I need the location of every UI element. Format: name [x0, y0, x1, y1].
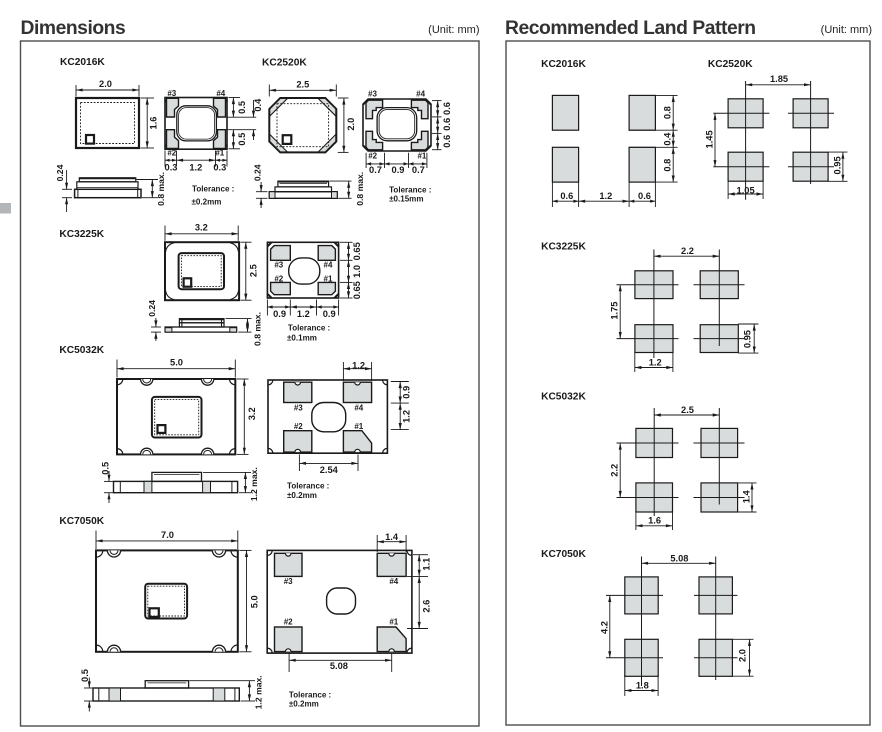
svg-text:KC5032K: KC5032K [541, 391, 586, 402]
svg-text:#2: #2 [284, 618, 293, 627]
svg-text:1.45: 1.45 [705, 130, 715, 148]
svg-text:1.8: 1.8 [636, 680, 649, 690]
svg-text:#2: #2 [167, 149, 176, 158]
svg-text:0.95: 0.95 [743, 330, 753, 348]
svg-text:0.95: 0.95 [832, 156, 842, 174]
svg-text:#1: #1 [389, 618, 398, 627]
svg-text:1.2: 1.2 [401, 410, 411, 423]
svg-text:0.9: 0.9 [323, 309, 336, 319]
svg-text:2.5: 2.5 [248, 264, 258, 277]
svg-text:0.8 max.: 0.8 max. [253, 312, 263, 346]
svg-text:0.3: 0.3 [213, 162, 226, 172]
svg-text:#3: #3 [167, 89, 176, 98]
svg-text:5.08: 5.08 [670, 553, 688, 563]
svg-text:#4: #4 [416, 89, 425, 98]
svg-text:Tolerance :: Tolerance : [289, 691, 331, 700]
svg-text:#2: #2 [294, 422, 303, 431]
svg-text:1.05: 1.05 [737, 185, 755, 195]
svg-text:0.24: 0.24 [147, 300, 157, 317]
svg-text:5.08: 5.08 [330, 661, 348, 671]
svg-text:0.4: 0.4 [662, 132, 672, 146]
svg-text:2.5: 2.5 [681, 405, 694, 415]
svg-text:#4: #4 [389, 577, 398, 586]
svg-text:#3: #3 [294, 403, 303, 412]
svg-text:#1: #1 [215, 149, 224, 158]
svg-text:0.6: 0.6 [442, 135, 452, 148]
svg-text:±0.2mm: ±0.2mm [287, 491, 317, 500]
svg-text:2.0: 2.0 [99, 79, 112, 89]
svg-text:1.85: 1.85 [770, 74, 788, 84]
svg-text:3.2: 3.2 [195, 223, 208, 233]
svg-text:1.2: 1.2 [649, 357, 662, 367]
svg-text:1.75: 1.75 [610, 302, 620, 320]
svg-text:KC3225K: KC3225K [541, 241, 586, 252]
svg-text:0.4: 0.4 [253, 98, 263, 112]
svg-text:0.6: 0.6 [638, 191, 651, 201]
svg-text:0.24: 0.24 [252, 164, 262, 181]
svg-text:2.54: 2.54 [320, 465, 339, 475]
svg-text:#3: #3 [368, 89, 377, 98]
svg-text:3.2: 3.2 [247, 407, 257, 420]
svg-text:#4: #4 [354, 403, 363, 412]
svg-text:0.6: 0.6 [442, 102, 452, 115]
svg-text:Tolerance :: Tolerance : [288, 324, 330, 333]
svg-text:KC7050K: KC7050K [59, 516, 104, 527]
svg-text:1.6: 1.6 [648, 516, 661, 526]
svg-text:#1: #1 [417, 151, 426, 160]
svg-text:#4: #4 [216, 89, 225, 98]
svg-text:KC2016K: KC2016K [60, 57, 105, 68]
svg-text:0.5: 0.5 [100, 462, 110, 475]
svg-text:0.24: 0.24 [55, 164, 65, 181]
svg-text:#3: #3 [284, 577, 293, 586]
svg-text:0.7: 0.7 [412, 165, 425, 175]
svg-text:Tolerance :: Tolerance : [287, 482, 329, 491]
svg-text:0.3: 0.3 [165, 162, 178, 172]
svg-text:0.6: 0.6 [560, 191, 573, 201]
svg-text:Tolerance :: Tolerance : [192, 185, 234, 194]
svg-text:#2: #2 [368, 151, 377, 160]
svg-text:2.2: 2.2 [681, 246, 694, 256]
svg-text:(Unit: mm): (Unit: mm) [821, 24, 872, 36]
svg-text:2.6: 2.6 [421, 600, 431, 613]
svg-text:KC2016K: KC2016K [541, 59, 586, 70]
svg-text:0.8 max.: 0.8 max. [355, 172, 365, 206]
svg-text:KC2520K: KC2520K [262, 58, 307, 69]
svg-text:0.8: 0.8 [662, 159, 672, 172]
svg-text:KC5032K: KC5032K [59, 345, 104, 356]
svg-text:5.0: 5.0 [249, 595, 259, 608]
svg-text:1.2: 1.2 [352, 361, 365, 371]
svg-text:0.9: 0.9 [392, 165, 405, 175]
svg-text:KC3225K: KC3225K [59, 229, 104, 240]
svg-text:0.65: 0.65 [352, 242, 362, 260]
svg-text:2.5: 2.5 [296, 79, 309, 89]
svg-text:#4: #4 [324, 261, 333, 270]
svg-text:2.2: 2.2 [610, 464, 620, 477]
svg-text:1.2 max.: 1.2 max. [249, 467, 259, 501]
svg-text:1.2: 1.2 [189, 162, 202, 172]
svg-text:0.5: 0.5 [237, 101, 247, 114]
svg-text:#1: #1 [354, 422, 363, 431]
svg-text:±0.1mm: ±0.1mm [287, 333, 317, 342]
svg-text:Recommended Land Pattern: Recommended Land Pattern [505, 18, 756, 39]
svg-text:(Unit: mm): (Unit: mm) [428, 24, 479, 36]
svg-text:1.6: 1.6 [149, 117, 159, 130]
svg-text:0.65: 0.65 [352, 281, 362, 299]
svg-text:4.2: 4.2 [599, 621, 609, 634]
svg-text:±0.2mm: ±0.2mm [289, 700, 319, 709]
svg-text:5.0: 5.0 [170, 357, 183, 367]
svg-text:#3: #3 [274, 261, 283, 270]
svg-text:±0.2mm: ±0.2mm [192, 198, 222, 207]
svg-text:0.9: 0.9 [401, 386, 411, 399]
svg-text:0.5: 0.5 [237, 133, 247, 146]
svg-text:1.4: 1.4 [741, 490, 751, 504]
svg-text:2.0: 2.0 [738, 649, 748, 662]
svg-text:7.0: 7.0 [161, 530, 174, 540]
svg-text:1.2: 1.2 [599, 191, 612, 201]
svg-text:0.5: 0.5 [80, 669, 90, 682]
svg-text:±0.15mm: ±0.15mm [389, 195, 423, 204]
svg-text:#1: #1 [324, 274, 333, 283]
svg-text:2.0: 2.0 [346, 118, 356, 131]
svg-text:Tolerance :: Tolerance : [389, 185, 431, 194]
svg-text:0.8: 0.8 [662, 106, 672, 119]
svg-text:0.9: 0.9 [273, 309, 286, 319]
svg-text:KC7050K: KC7050K [541, 549, 586, 560]
svg-text:KC2520K: KC2520K [708, 59, 753, 70]
svg-text:1.2 max.: 1.2 max. [254, 675, 264, 709]
svg-text:#2: #2 [274, 274, 283, 283]
svg-text:1.4: 1.4 [385, 532, 399, 542]
svg-text:1.2: 1.2 [297, 309, 310, 319]
svg-text:0.7: 0.7 [369, 165, 382, 175]
svg-text:0.8 max.: 0.8 max. [156, 172, 166, 206]
svg-text:0.6: 0.6 [442, 118, 452, 131]
svg-text:1.0: 1.0 [352, 265, 362, 278]
svg-text:Dimensions: Dimensions [21, 18, 126, 39]
svg-text:1.1: 1.1 [421, 558, 431, 571]
